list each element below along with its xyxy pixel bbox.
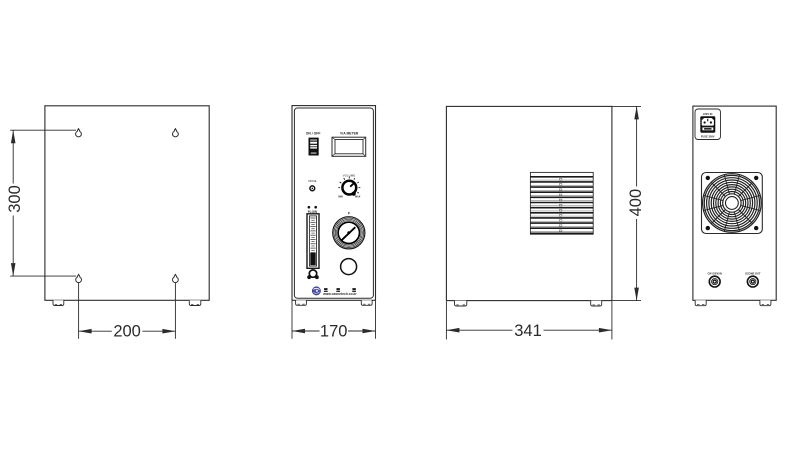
- svg-text:200: 200: [113, 323, 141, 341]
- svg-text:ON / OFF: ON / OFF: [306, 131, 321, 135]
- svg-text:300: 300: [6, 185, 24, 213]
- svg-text:MIN: MIN: [338, 196, 343, 199]
- svg-text:341: 341: [514, 322, 542, 340]
- svg-text:MAX: MAX: [355, 196, 361, 199]
- svg-text:OZONE OUT: OZONE OUT: [745, 271, 761, 275]
- svg-text:www.ozonetech.co.kr: www.ozonetech.co.kr: [322, 292, 357, 296]
- svg-text:170: 170: [320, 322, 348, 340]
- svg-text:V/A METER: V/A METER: [340, 131, 359, 135]
- svg-text:OXYGEN IN: OXYGEN IN: [707, 271, 722, 275]
- svg-text:400: 400: [627, 189, 645, 217]
- svg-text:OZONE: OZONE: [308, 180, 317, 183]
- svg-text:220V IN: 220V IN: [703, 112, 712, 116]
- svg-text:FUSE 250V: FUSE 250V: [701, 135, 715, 139]
